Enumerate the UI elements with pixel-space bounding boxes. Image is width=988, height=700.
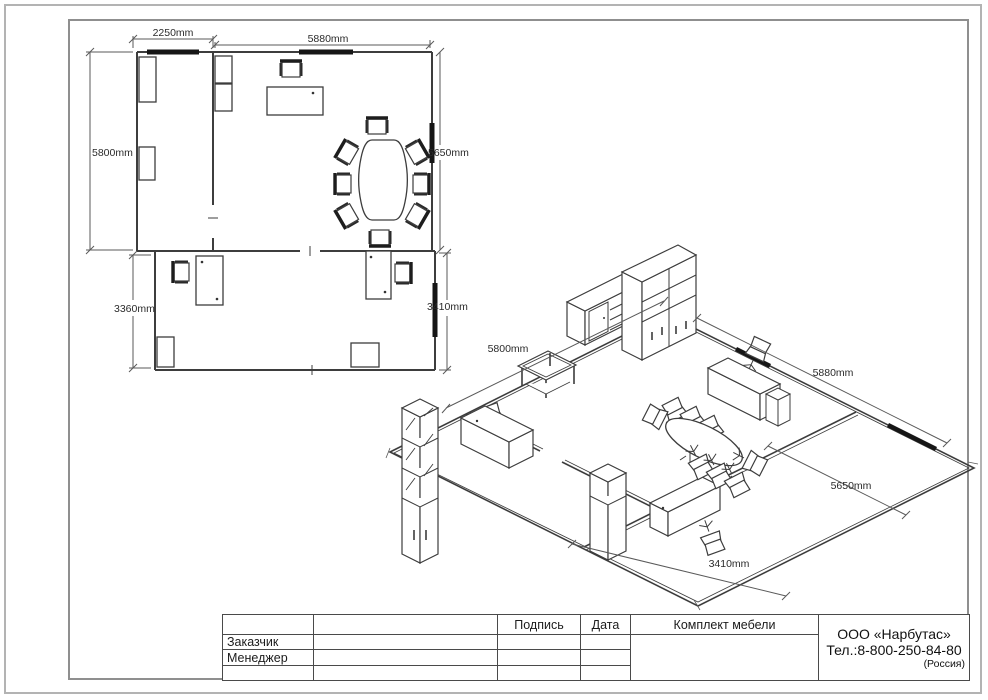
title-block: Подпись Дата Комплект мебели ООО «Нарбут… [222, 614, 970, 681]
wardrobe [622, 245, 696, 360]
iso-floor-walls [390, 314, 974, 606]
cabinet [139, 147, 155, 180]
company-phone: Тел.:8-800-250-84-80 [823, 642, 965, 658]
iso-dim-right: 5650mm [831, 480, 872, 492]
company-name: ООО «Нарбутас» [823, 626, 965, 642]
cabinet [215, 56, 232, 83]
title-block-cell [223, 666, 314, 681]
title-block-cell [498, 666, 581, 681]
dim-room-a-height: 5800mm [92, 147, 133, 159]
isometric-view: 5800mm 5880mm 5650mm 3410mm [386, 245, 978, 610]
customer-date [581, 635, 631, 650]
executive-desk [708, 336, 790, 426]
office-chair [280, 61, 302, 77]
conference-table [359, 140, 408, 220]
company-country: (Россия) [823, 658, 965, 670]
iso-dim-back-left: 5800mm [488, 343, 529, 355]
customer-label: Заказчик [223, 635, 314, 650]
iso-dim-front: 3410mm [709, 558, 750, 570]
side-desk [650, 477, 726, 556]
cabinet [139, 57, 156, 102]
project-body [631, 635, 819, 681]
iso-dimensions [386, 297, 978, 610]
tall-cabinet [590, 464, 626, 560]
plan-furniture [139, 56, 429, 367]
cabinet [351, 343, 379, 367]
dim-room-b-height: 5650mm [428, 147, 469, 159]
manager-value [314, 650, 498, 666]
title-block-cell [314, 666, 498, 681]
dim-room-a-width: 2250mm [153, 27, 194, 39]
desk [366, 251, 391, 299]
iso-dim-back-right: 5880mm [813, 367, 854, 379]
title-block-cell [314, 615, 498, 635]
dim-room-b-width: 5880mm [308, 33, 349, 45]
bookshelf [402, 399, 438, 563]
customer-value [314, 635, 498, 650]
project-title: Комплект мебели [631, 615, 819, 635]
manager-signature [498, 650, 581, 666]
drawing-canvas: 2250mm 5880mm 5800mm 5650mm 3360mm 3410m… [0, 0, 988, 700]
desk [196, 256, 223, 305]
date-header: Дата [581, 615, 631, 635]
customer-signature [498, 635, 581, 650]
reception-desk [461, 402, 533, 468]
floor-plan-2d: 2250mm 5880mm 5800mm 5650mm 3360mm 3410m… [86, 27, 469, 375]
cabinet [157, 337, 174, 367]
manager-date [581, 650, 631, 666]
dim-room-c-right: 3410mm [427, 301, 468, 313]
company-info: ООО «Нарбутас» Тел.:8-800-250-84-80 (Рос… [819, 615, 970, 681]
cabinet [215, 84, 232, 111]
dim-room-c-left: 3360mm [114, 303, 155, 315]
desk [267, 87, 323, 115]
signature-header: Подпись [498, 615, 581, 635]
title-block-cell [581, 666, 631, 681]
manager-label: Менеджер [223, 650, 314, 666]
drawing-sheet: 2250mm 5880mm 5800mm 5650mm 3360mm 3410m… [0, 0, 988, 700]
office-chair [695, 517, 725, 556]
title-block-cell [223, 615, 314, 635]
